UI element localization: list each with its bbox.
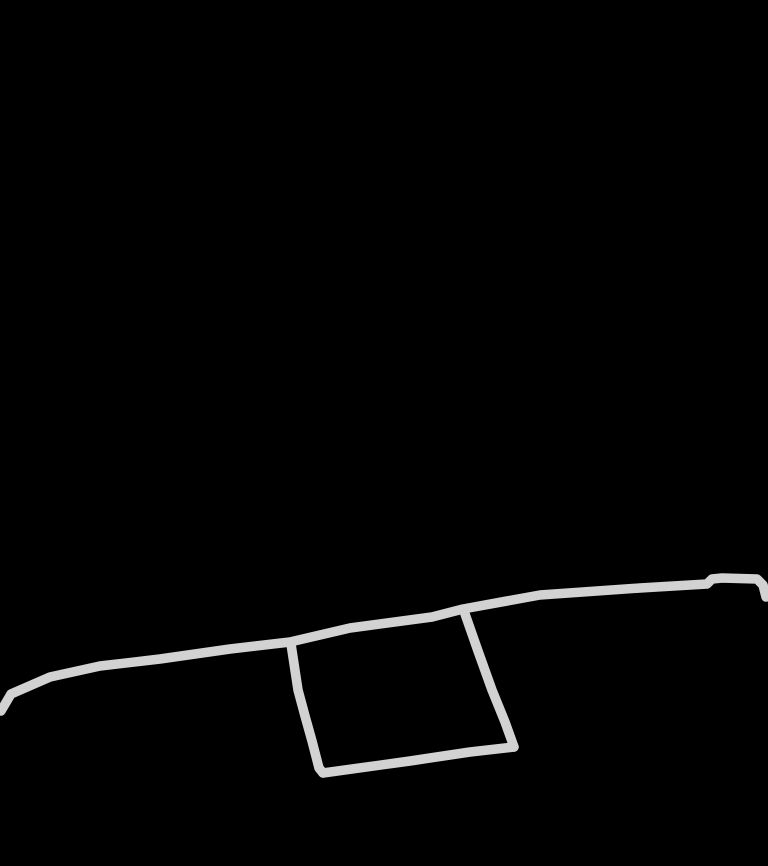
drawing-canvas[interactable] <box>0 0 768 866</box>
freehand-quad-left-edge <box>291 644 323 773</box>
freehand-long-line <box>1 578 766 711</box>
freehand-quad-right-edge <box>464 611 514 747</box>
sketch-strokes-svg <box>0 0 768 866</box>
freehand-quad-bottom-edge <box>323 747 514 773</box>
